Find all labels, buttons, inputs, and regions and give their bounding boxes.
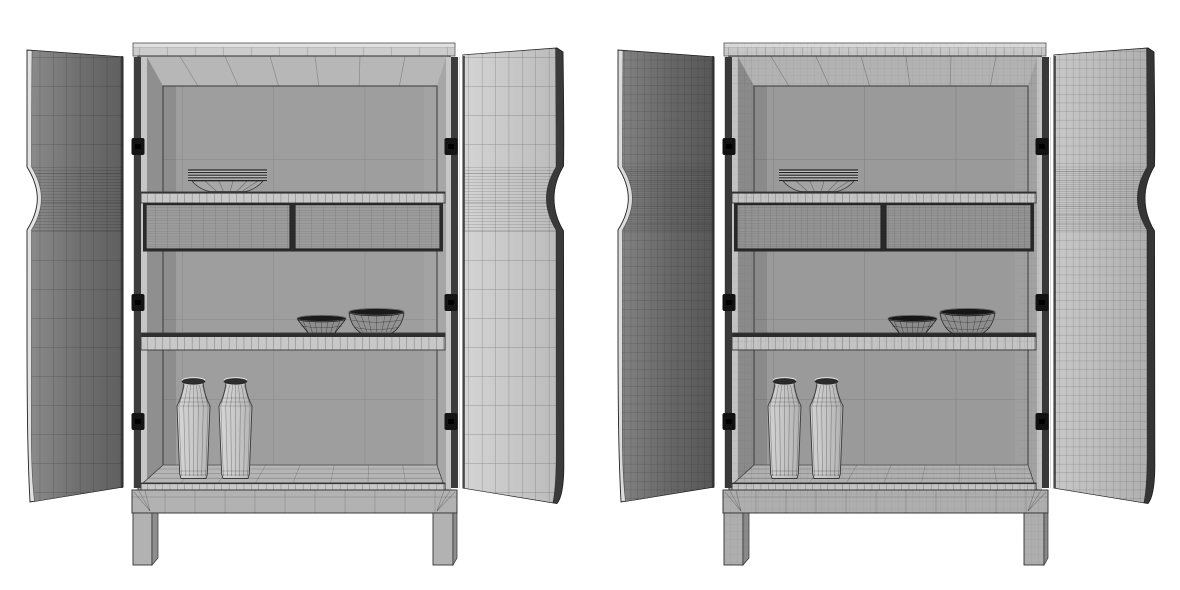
vase-2 — [810, 378, 843, 479]
bowl-large — [940, 309, 995, 335]
bowl-large — [349, 309, 404, 335]
vase-1 — [177, 378, 210, 479]
leg-left — [133, 513, 158, 565]
scene-canvas — [0, 0, 1180, 590]
cabinet-wireframe-right — [618, 43, 1158, 565]
cornice — [133, 43, 455, 56]
leg-right — [433, 513, 457, 565]
vase-2 — [219, 378, 252, 479]
wireframe-render — [0, 0, 1180, 590]
drawer-row — [143, 203, 443, 252]
shelf-top — [141, 192, 445, 203]
drawer-right — [295, 205, 440, 250]
vase-1 — [768, 378, 801, 479]
cabinet-wireframe-left — [27, 43, 567, 565]
drawer-right — [886, 205, 1031, 250]
shelf-middle — [141, 333, 445, 350]
drawer-left — [737, 205, 881, 250]
base — [132, 490, 457, 565]
drawer-row — [734, 203, 1034, 252]
drawer-left — [146, 205, 290, 250]
